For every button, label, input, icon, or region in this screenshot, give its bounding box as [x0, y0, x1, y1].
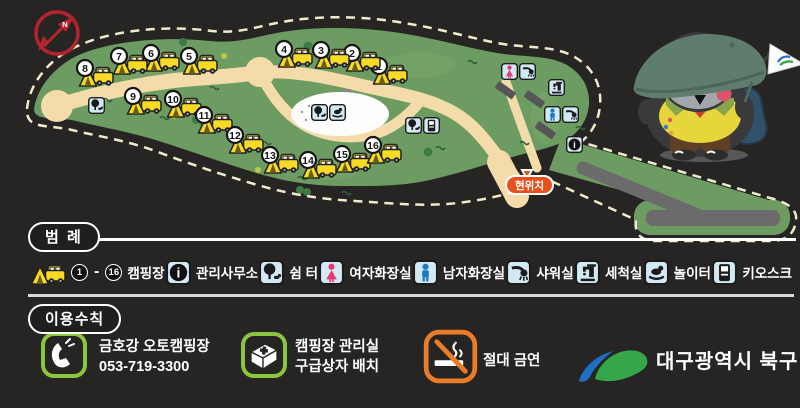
rules-title: 이용수칙 — [28, 304, 121, 334]
campground-name: 금호강 오토캠핑장 — [99, 338, 210, 358]
legend-item-office: 관리사무소 — [166, 260, 258, 285]
legend-label: 놀이터 — [674, 262, 711, 282]
legend-item-washing: 세척실 — [575, 260, 642, 285]
svg-text:2: 2 — [349, 48, 355, 60]
organization-name: 대구광역시 북구 — [656, 349, 798, 376]
shower-map-icon — [563, 107, 579, 123]
campsite-icon — [30, 260, 66, 285]
section-divider — [28, 294, 794, 297]
compass-icon: N — [36, 12, 78, 54]
no-smoking-icon — [423, 329, 478, 384]
range-dash: - — [94, 263, 99, 281]
svg-text:6: 6 — [148, 48, 154, 60]
shower-map-icon — [520, 64, 536, 80]
svg-text:16: 16 — [367, 140, 379, 152]
svg-text:14: 14 — [302, 155, 314, 167]
info-map-icon — [567, 137, 583, 153]
phone-info: 금호강 오토캠핑장 053-719-3300 — [99, 338, 210, 377]
legend-item-playground: 놀이터 — [644, 260, 711, 285]
camper-owl-mascot — [612, 12, 800, 167]
buk-gu-logo — [575, 339, 653, 387]
male-icon — [413, 260, 438, 285]
svg-text:8: 8 — [82, 63, 88, 75]
site-number-to: 16 — [105, 264, 122, 281]
svg-text:현위치: 현위치 — [515, 179, 544, 192]
shelter-map-icon — [89, 98, 105, 114]
info-icon — [166, 260, 191, 285]
legend-label: 남자화장실 — [443, 262, 505, 282]
svg-text:12: 12 — [229, 130, 241, 142]
legend-label: 쉼 터 — [289, 262, 318, 282]
legend-label: 키오스크 — [742, 262, 792, 282]
kiosk-icon — [712, 260, 737, 285]
washing-map-icon — [549, 80, 565, 96]
legend-label: 캠핑장 — [127, 262, 164, 282]
shelter-map-icon — [406, 118, 422, 134]
tree-icon — [259, 260, 284, 285]
phone-number: 053-719-3300 — [99, 358, 210, 378]
phone-icon — [40, 331, 88, 379]
mascot-flag — [768, 44, 800, 74]
svg-text:13: 13 — [264, 150, 276, 162]
legend-item-toilet-male: 남자화장실 — [413, 260, 505, 285]
svg-text:N: N — [62, 20, 67, 29]
legend-item-toilet-female: 여자화장실 — [319, 260, 411, 285]
svg-text:4: 4 — [281, 44, 287, 56]
female-icon — [319, 260, 344, 285]
no-smoking-label: 절대 금연 — [483, 352, 540, 372]
svg-text:3: 3 — [318, 45, 324, 57]
kiosk-map-icon — [424, 118, 440, 134]
legend-item-shelter: 쉼 터 — [259, 260, 318, 285]
legend-label: 여자화장실 — [349, 262, 411, 282]
svg-text:7: 7 — [116, 51, 122, 63]
playground-map-icon — [330, 105, 346, 121]
legend-label: 세척실 — [605, 262, 642, 282]
svg-text:15: 15 — [336, 149, 348, 161]
campground-guide-poster: i — [0, 0, 800, 408]
first-aid-icon — [240, 331, 288, 379]
faucet-icon — [575, 260, 600, 285]
site-number-from: 1 — [71, 264, 88, 281]
shelter-map-icon — [312, 105, 328, 121]
toilet-female-map-icon — [502, 64, 518, 80]
legend-item-kiosk: 키오스크 — [712, 260, 792, 285]
legend-title: 범 례 — [28, 222, 100, 252]
playground-icon — [644, 260, 669, 285]
legend-label: 관리사무소 — [196, 262, 258, 282]
toilet-male-map-icon — [545, 107, 561, 123]
legend-title-rule — [40, 238, 796, 241]
svg-text:5: 5 — [186, 51, 192, 63]
svg-text:11: 11 — [198, 110, 209, 122]
legend-label: 샤워실 — [536, 262, 573, 282]
legend-item-shower: 샤워실 — [506, 260, 573, 285]
legend-item-camping: 1 - 16 캠핑장 — [30, 260, 165, 285]
first-aid-info: 캠핑장 관리실 구급상자 배치 — [295, 338, 379, 377]
shower-icon — [506, 260, 531, 285]
svg-text:9: 9 — [130, 91, 136, 103]
legend-row: 1 - 16 캠핑장 관리사무소 쉼 터 여자화장실 남자화장실 — [30, 253, 792, 291]
svg-text:10: 10 — [167, 94, 179, 106]
